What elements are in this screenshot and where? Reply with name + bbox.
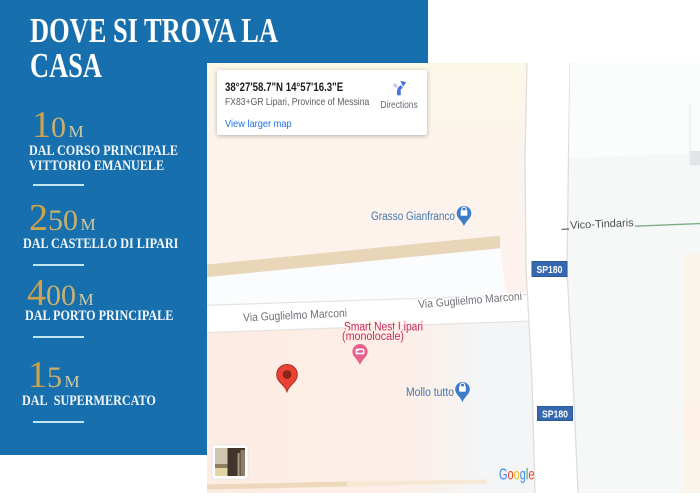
svg-text:Mollo tutto: Mollo tutto	[406, 387, 454, 399]
svg-text:(monolocale): (monolocale)	[342, 331, 404, 343]
svg-text:Grasso Gianfranco: Grasso Gianfranco	[371, 211, 455, 223]
svg-text:Google: Google	[499, 467, 535, 484]
svg-text:SP180: SP180	[537, 264, 563, 276]
svg-text:SP180: SP180	[542, 409, 568, 421]
